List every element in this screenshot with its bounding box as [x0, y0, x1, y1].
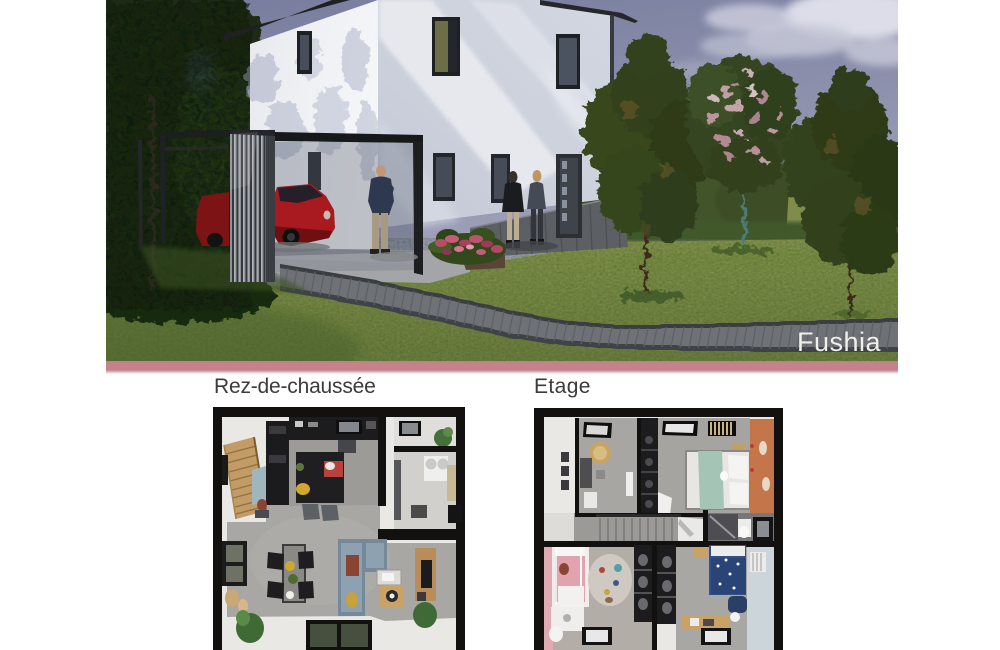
svg-text:Fushia: Fushia [797, 327, 882, 357]
